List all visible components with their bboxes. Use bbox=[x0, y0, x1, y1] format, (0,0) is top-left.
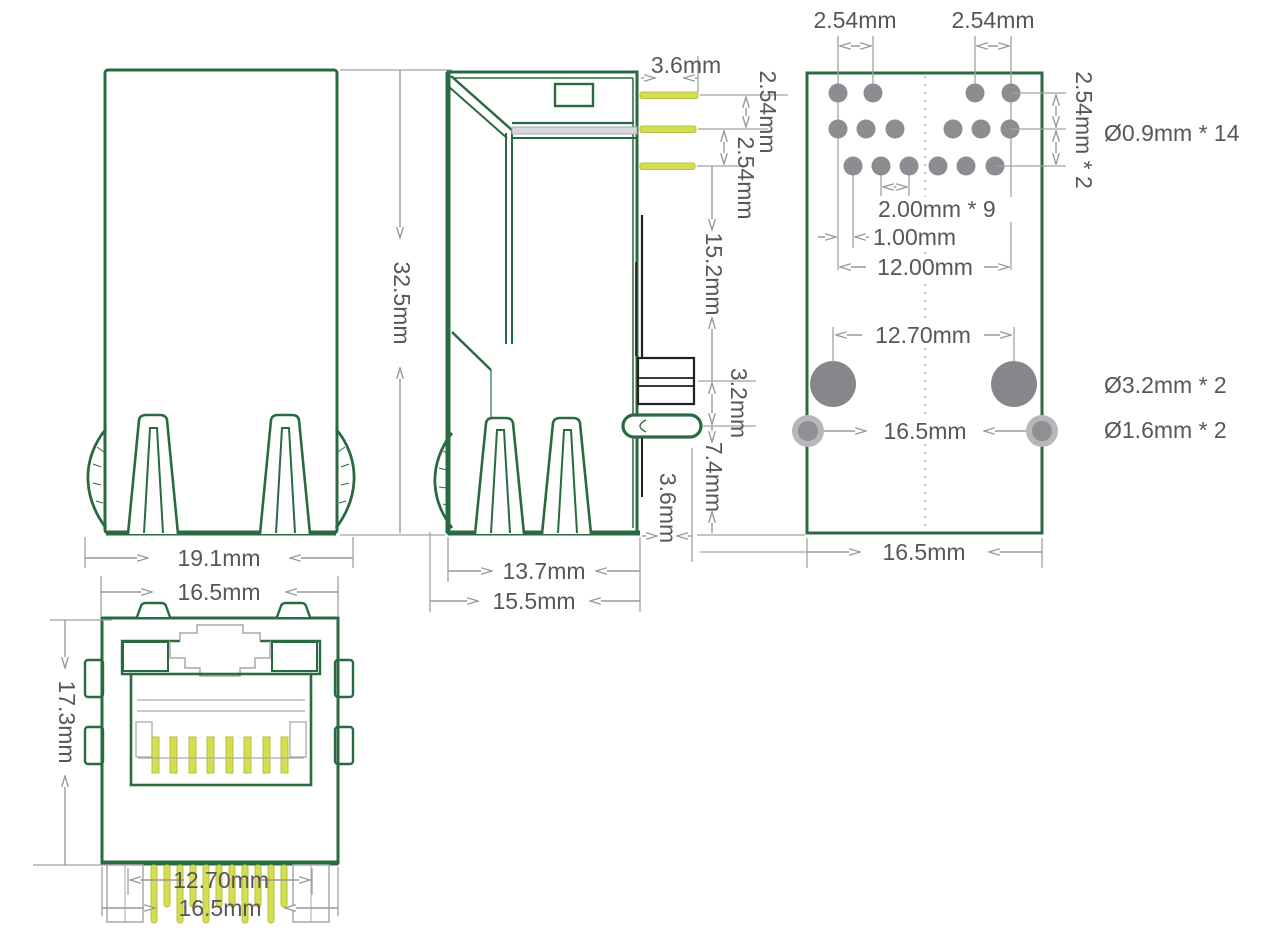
pcb-tab bbox=[638, 358, 694, 404]
led-green bbox=[123, 642, 168, 671]
latch-leg bbox=[128, 415, 178, 534]
dim-fp-width: 16.5mm bbox=[700, 538, 1042, 568]
dim-fp-row-pitch-label: 2.54mm * 2 bbox=[1071, 71, 1097, 189]
dim-fp-led-pitch-right-label: 2.54mm bbox=[951, 7, 1034, 33]
signal-pin bbox=[640, 163, 695, 170]
dim-side-post-height-label: 7.4mm bbox=[701, 442, 727, 512]
dim-front-tab-span-label: 12.70mm bbox=[173, 867, 269, 893]
led-yellow bbox=[272, 642, 317, 671]
dim-fp-signal-pitch-label: 2.00mm * 9 bbox=[878, 196, 996, 222]
keystone-shoulder bbox=[170, 641, 270, 676]
dim-fp-led-pitch-left-label: 2.54mm bbox=[813, 7, 896, 33]
post-hole bbox=[991, 361, 1037, 407]
dim-left-shield-width-label: 16.5mm bbox=[177, 579, 260, 605]
dim-side-rear-offset-label: 3.6mm bbox=[655, 473, 681, 543]
dim-side-leg-span-label: 13.7mm bbox=[502, 558, 585, 584]
led-pin bbox=[640, 92, 698, 99]
latch-leg bbox=[542, 418, 591, 534]
dim-fp-post-span: 12.70mm bbox=[833, 322, 1014, 362]
left-profile-view bbox=[88, 70, 354, 534]
latch-leg bbox=[260, 415, 310, 534]
technical-drawing-canvas: 32.5mm 19.1mm 16.5mm bbox=[0, 0, 1271, 936]
dim-side-pin-length: 3.6mm bbox=[641, 52, 721, 92]
dim-fp-led-pitch-right: 2.54mm bbox=[951, 7, 1034, 46]
side-view bbox=[435, 72, 701, 534]
dim-side-depth-label: 15.5mm bbox=[492, 588, 575, 614]
dim-side-pin-pitch: 2.54mm 2.54mm bbox=[697, 70, 788, 219]
top-tab bbox=[277, 603, 310, 617]
spec-post-hole-label: Ø3.2mm * 2 bbox=[1104, 372, 1227, 398]
dim-side-tab-height-label: 3.2mm bbox=[726, 368, 752, 438]
dim-fp-row-offset-label: 1.00mm bbox=[873, 224, 956, 250]
dim-front-width-label: 16.5mm bbox=[178, 895, 261, 921]
spec-shield-hole-label: Ø1.6mm * 2 bbox=[1104, 417, 1227, 443]
dim-pin-pitch-bottom-label: 2.54mm bbox=[733, 136, 759, 219]
dim-fp-width-label: 16.5mm bbox=[882, 539, 965, 565]
dim-fp-post-span-label: 12.70mm bbox=[875, 322, 971, 348]
led-pin bbox=[640, 126, 696, 133]
rj45-dimension-drawing: 32.5mm 19.1mm 16.5mm bbox=[0, 0, 1271, 936]
latch-leg bbox=[475, 418, 524, 534]
jack-contacts bbox=[152, 737, 288, 773]
dim-fp-signal-pitch: 2.00mm * 9 bbox=[876, 187, 1012, 222]
post-hole bbox=[810, 361, 856, 407]
footprint-view bbox=[792, 36, 1058, 533]
shield-latch-hole bbox=[555, 84, 593, 106]
signal-holes bbox=[829, 84, 1021, 176]
dim-left-outer-width-label: 19.1mm bbox=[177, 545, 260, 571]
dim-side-pin-length-label: 3.6mm bbox=[651, 52, 721, 78]
dim-fp-signal-span: 12.00mm bbox=[840, 254, 1009, 280]
solder-post bbox=[623, 415, 701, 437]
dim-side-body-height-label: 15.2mm bbox=[701, 232, 727, 315]
dim-fp-shield-pitch: 16.5mm bbox=[824, 418, 1026, 444]
dim-left-outer-width: 19.1mm bbox=[85, 537, 353, 571]
right-clip bbox=[336, 429, 354, 528]
dim-fp-signal-span-label: 12.00mm bbox=[877, 254, 973, 280]
dim-left-height-label: 32.5mm bbox=[389, 261, 415, 344]
left-clip bbox=[88, 429, 106, 528]
dim-side-post-height: 7.4mm bbox=[701, 426, 727, 533]
dim-front-height-label: 17.3mm bbox=[54, 680, 80, 763]
top-tab bbox=[137, 603, 170, 617]
spec-signal-hole-label: Ø0.9mm * 14 bbox=[1104, 120, 1240, 146]
keystone-tab bbox=[180, 625, 260, 641]
dim-fp-row-offset: 1.00mm bbox=[818, 224, 977, 250]
dim-side-tab-height: 3.2mm bbox=[702, 368, 756, 438]
dim-fp-led-pitch-left: 2.54mm bbox=[813, 7, 896, 46]
dim-fp-shield-pitch-label: 16.5mm bbox=[883, 418, 966, 444]
